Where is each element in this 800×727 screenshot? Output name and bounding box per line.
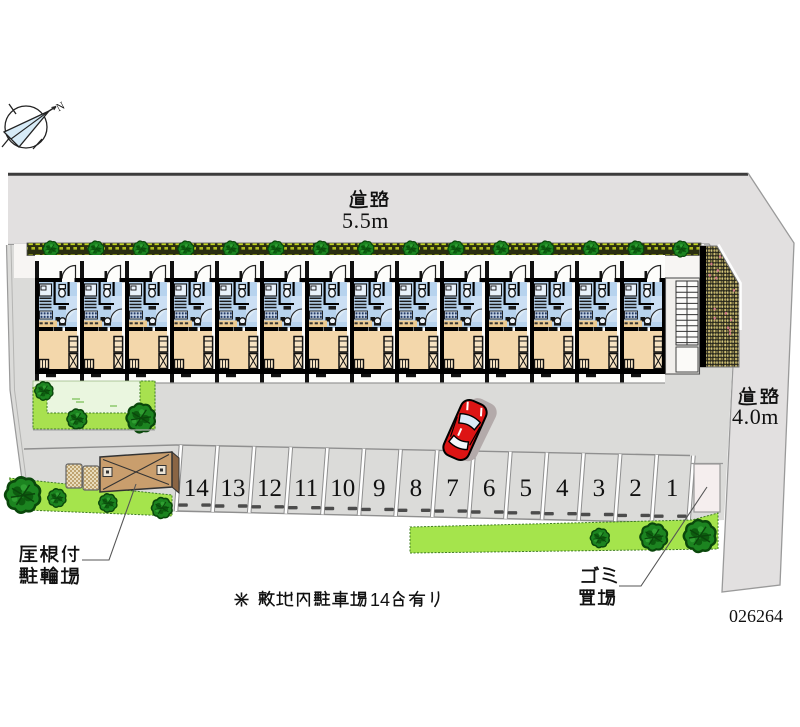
svg-text:026264: 026264 [729, 606, 783, 626]
svg-text:5: 5 [519, 475, 532, 502]
svg-text:3: 3 [593, 475, 606, 502]
svg-text:1: 1 [666, 475, 679, 502]
svg-text:10: 10 [330, 475, 355, 502]
svg-text:14: 14 [370, 590, 390, 610]
svg-text:11: 11 [294, 475, 318, 502]
svg-text:8: 8 [410, 475, 423, 502]
svg-text:12: 12 [257, 475, 282, 502]
svg-text:5.5m: 5.5m [342, 208, 389, 233]
svg-text:9: 9 [373, 475, 386, 502]
svg-text:6: 6 [483, 475, 496, 502]
svg-text:2: 2 [629, 475, 642, 502]
svg-text:14: 14 [184, 475, 210, 502]
svg-text:4.0m: 4.0m [732, 404, 779, 429]
svg-text:7: 7 [446, 475, 459, 502]
svg-text:13: 13 [220, 475, 245, 502]
svg-text:4: 4 [556, 475, 569, 502]
svg-text:N: N [54, 100, 67, 114]
